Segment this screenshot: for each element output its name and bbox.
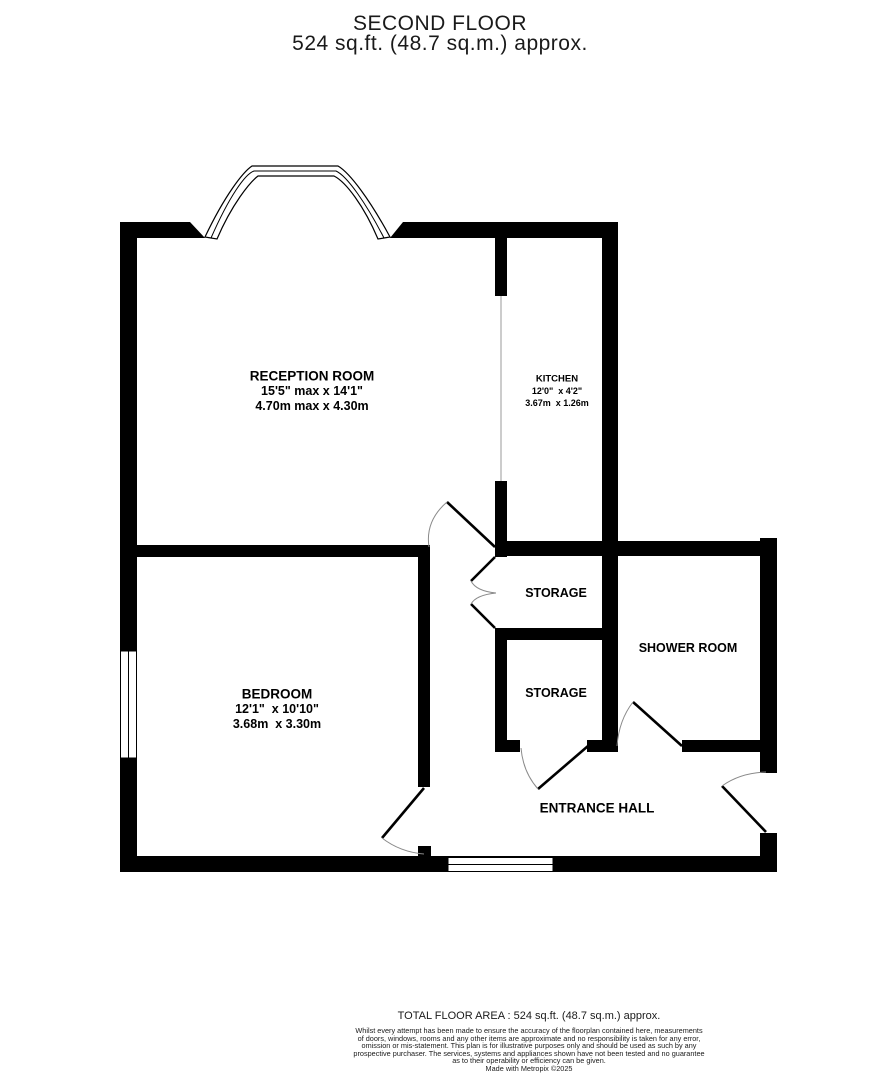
shower-room-label: SHOWER ROOM [639, 641, 738, 655]
wall-reception-bedroom-divider [120, 545, 430, 557]
storage-upper-label: STORAGE [525, 586, 587, 600]
wall-right-main [602, 222, 618, 752]
wall-extension-right-upper [760, 538, 777, 773]
walls [120, 222, 777, 872]
kitchen-dims-imperial: 12'0" x 4'2" [532, 386, 582, 396]
windows [121, 166, 554, 872]
front-door-leaf [722, 786, 766, 832]
wall-kitchen-left-upper [495, 238, 507, 296]
kitchen-label: KITCHEN [536, 374, 578, 385]
storage-upper-bifold-arc-top [471, 581, 496, 593]
floorplan-drawing: RECEPTION ROOM 15'5" max x 14'1" 4.70m m… [0, 0, 896, 1080]
wall-top-left [120, 222, 190, 238]
front-door-arc [722, 772, 766, 786]
wall-top-right [403, 222, 618, 238]
bedroom-label: BEDROOM [242, 687, 313, 702]
total-floor-area: TOTAL FLOOR AREA : 524 sq.ft. (48.7 sq.m… [149, 1010, 896, 1023]
wall-bedroom-right [418, 545, 430, 787]
bedroom-dims-metric: 3.68m x 3.30m [233, 717, 321, 731]
wall-left-upper [120, 222, 137, 652]
storage-upper-bifold-leaf-top [471, 557, 495, 581]
storage-upper-bifold-leaf-bottom [471, 604, 495, 628]
bedroom-dims-imperial: 12'1" x 10'10" [235, 702, 319, 716]
wall-left-lower [120, 757, 137, 872]
metropix-credit: Made with Metropix ©2025 [149, 1065, 896, 1073]
storage-upper-bifold-arc-bottom [471, 593, 496, 604]
wall-storage-bottom-left-stub [495, 740, 520, 752]
wall-bedroom-door-jamb [418, 846, 431, 856]
wall-extension-top [495, 541, 777, 556]
reception-room-label: RECEPTION ROOM [250, 369, 375, 384]
wall-bay-springer-right [390, 222, 403, 238]
wall-storage-bottom-right-stub [587, 740, 617, 752]
reception-room-dims-imperial: 15'5" max x 14'1" [261, 384, 363, 398]
reception-room-dims-metric: 4.70m max x 4.30m [255, 399, 368, 413]
bay-window [205, 166, 390, 239]
bedroom-door-leaf [382, 788, 424, 838]
entrance-hall-label: ENTRANCE HALL [540, 801, 655, 816]
shower-door-arc [617, 702, 633, 746]
kitchen-dims-metric: 3.67m x 1.26m [525, 398, 589, 408]
bedroom-door-arc [382, 838, 424, 854]
footer-block: TOTAL FLOOR AREA : 524 sq.ft. (48.7 sq.m… [149, 1010, 896, 1073]
storage-lower-door-leaf [538, 746, 588, 789]
floorplan-page: SECOND FLOOR 524 sq.ft. (48.7 sq.m.) app… [0, 0, 896, 1080]
room-labels: RECEPTION ROOM 15'5" max x 14'1" 4.70m m… [233, 369, 737, 816]
wall-storage-lower-left [495, 628, 507, 752]
shower-door-leaf [633, 702, 682, 746]
wall-bay-springer-left [190, 222, 205, 238]
wall-storage-divider [495, 628, 617, 640]
reception-door-leaf [447, 502, 495, 547]
storage-lower-door-arc [521, 748, 538, 789]
storage-lower-label: STORAGE [525, 686, 587, 700]
reception-door-arc [428, 502, 447, 547]
